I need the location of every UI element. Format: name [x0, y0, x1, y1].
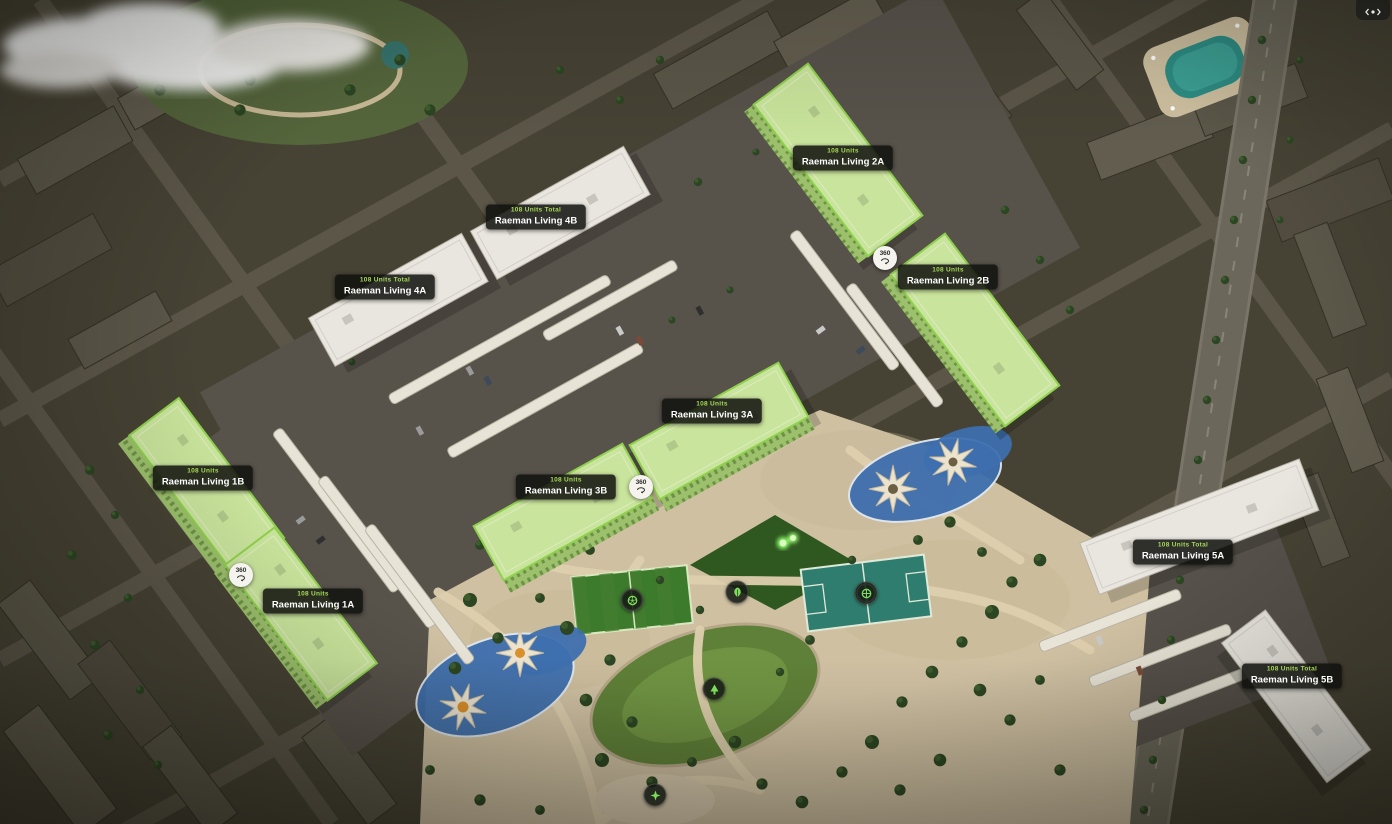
building-label-5b[interactable]: 108 Units Total Raeman Living 5B: [1242, 664, 1342, 689]
units-text: 108 Units Total: [511, 208, 561, 215]
building-label-4a[interactable]: 108 Units Total Raeman Living 4A: [335, 275, 435, 300]
units-text: 108 Units: [187, 469, 219, 476]
building-label-3a[interactable]: 108 Units Raeman Living 3A: [662, 399, 762, 424]
building-name: Raeman Living 5A: [1142, 550, 1224, 561]
building-name: Raeman Living 3A: [671, 409, 753, 420]
building-label-5a[interactable]: 108 Units Total Raeman Living 5A: [1133, 540, 1233, 565]
building-label-4b[interactable]: 108 Units Total Raeman Living 4B: [486, 205, 586, 230]
building-name: Raeman Living 2B: [907, 275, 989, 286]
units-text: 108 Units Total: [1267, 667, 1317, 674]
building-name: Raeman Living 1A: [272, 599, 354, 610]
park-tree-icon: [708, 683, 720, 695]
view-360-marker[interactable]: 360: [629, 475, 653, 499]
view-360-marker[interactable]: 360: [229, 563, 253, 587]
units-text: 108 Units: [696, 402, 728, 409]
rotate-arrow-icon: [636, 487, 646, 494]
units-text: 108 Units: [550, 478, 582, 485]
soccer-field-icon: [626, 594, 638, 606]
building-label-1b[interactable]: 108 Units Raeman Living 1B: [153, 466, 253, 491]
units-text: 108 Units Total: [360, 278, 410, 285]
amenity-marker-plaza[interactable]: [644, 784, 667, 807]
building-name: Raeman Living 4A: [344, 285, 426, 296]
building-label-1a[interactable]: 108 Units Raeman Living 1A: [263, 589, 363, 614]
amenity-marker-lawn[interactable]: [726, 581, 749, 604]
building-name: Raeman Living 3B: [525, 485, 607, 496]
building-name: Raeman Living 2A: [802, 156, 884, 167]
units-text: 108 Units: [932, 268, 964, 275]
pan-view-icon: [1365, 8, 1381, 16]
masterplan-canvas: 108 Units Raeman Living 1A 108 Units Rae…: [0, 0, 1392, 824]
view-mode-button[interactable]: [1356, 0, 1390, 20]
leaf-icon: [731, 586, 743, 598]
building-name: Raeman Living 5B: [1251, 674, 1333, 685]
units-text: 108 Units: [297, 592, 329, 599]
rotate-arrow-icon: [236, 575, 246, 582]
units-text: 108 Units Total: [1158, 543, 1208, 550]
star-icon: [649, 789, 661, 801]
view-360-marker[interactable]: 360: [873, 246, 897, 270]
building-label-2b[interactable]: 108 Units Raeman Living 2B: [898, 265, 998, 290]
rotate-arrow-icon: [880, 258, 890, 265]
amenity-marker-central-lawn[interactable]: [703, 678, 726, 701]
building-label-2a[interactable]: 108 Units Raeman Living 2A: [793, 146, 893, 171]
units-text: 108 Units: [827, 149, 859, 156]
building-name: Raeman Living 1B: [162, 476, 244, 487]
building-label-3b[interactable]: 108 Units Raeman Living 3B: [516, 475, 616, 500]
amenity-marker-basketball[interactable]: [855, 582, 878, 605]
amenity-marker-soccer[interactable]: [621, 589, 644, 612]
basketball-court-icon: [860, 587, 872, 599]
building-name: Raeman Living 4B: [495, 215, 577, 226]
